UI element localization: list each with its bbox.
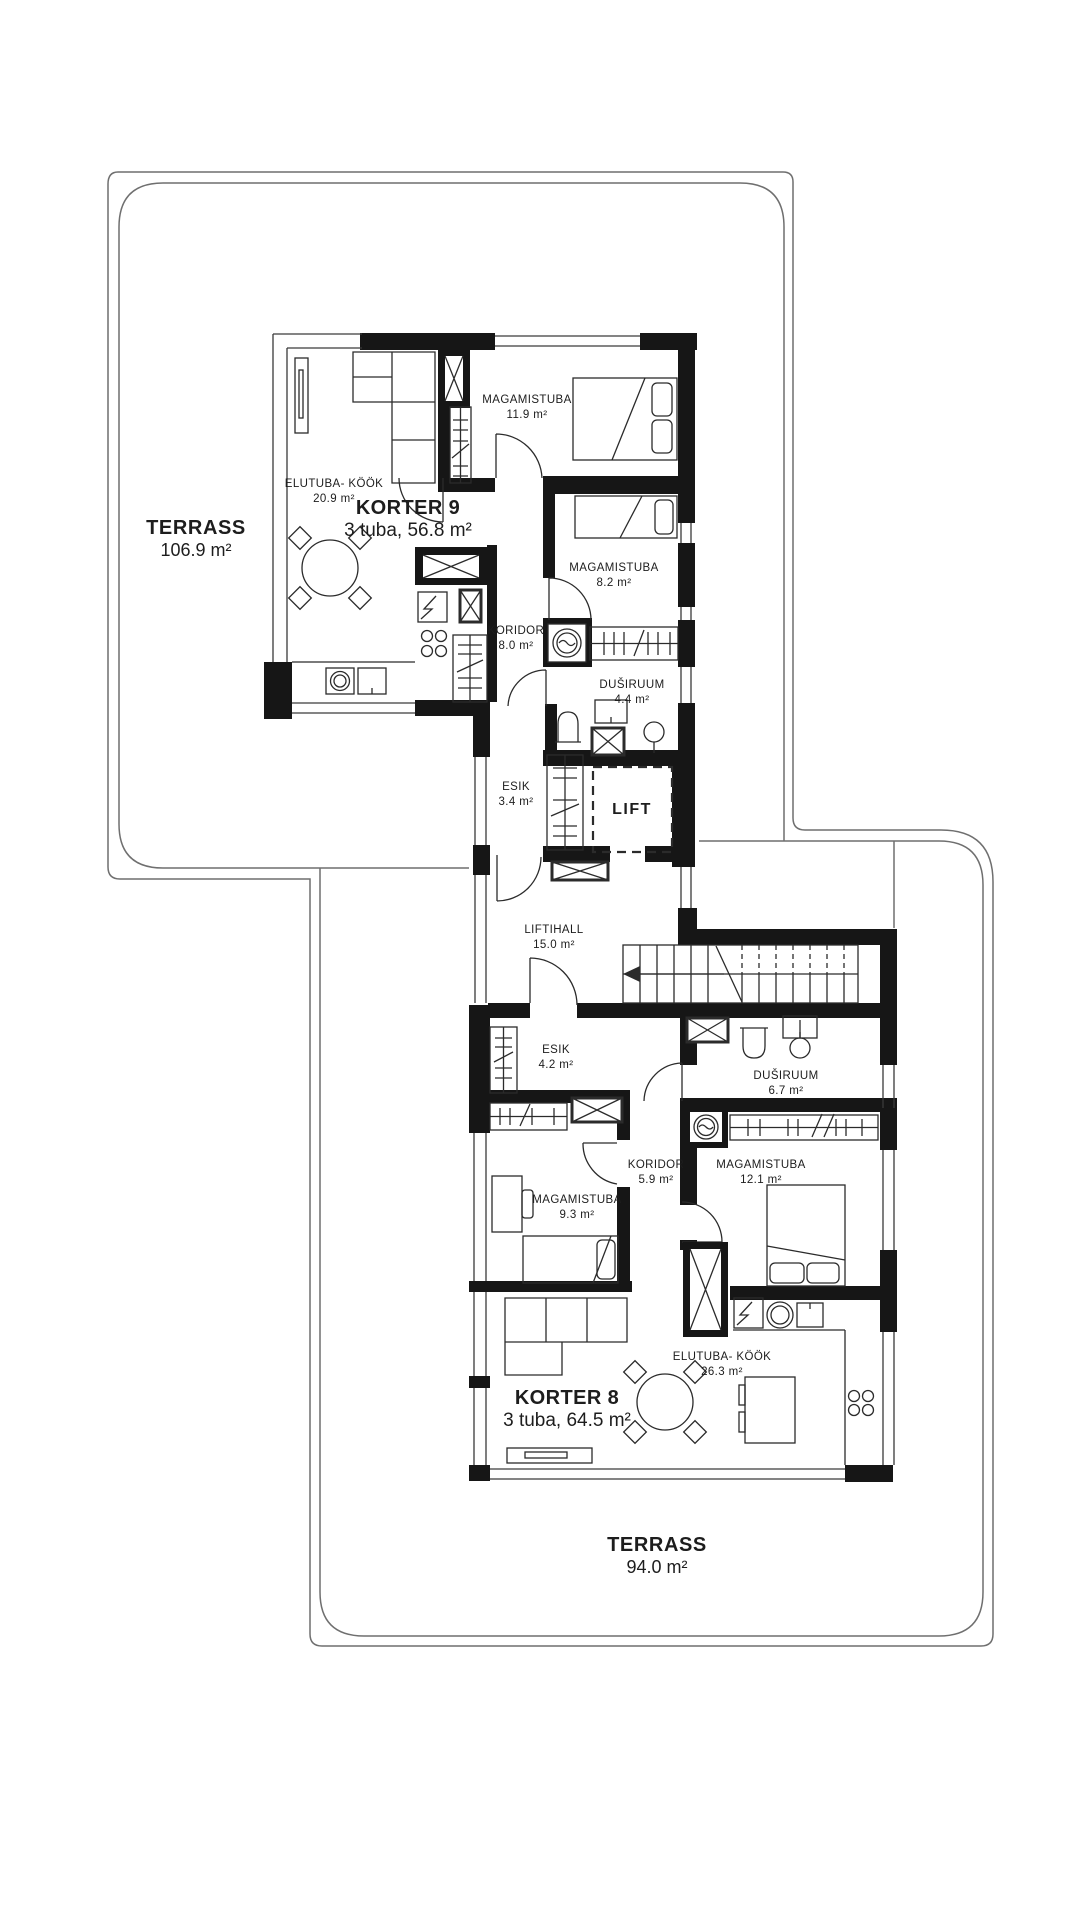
room-area: 20.9 m² [313,493,355,505]
room-name: KORIDOR [628,1159,684,1171]
apartment-info: 3 tuba, 64.5 m² [503,1410,631,1431]
room-area: 3.4 m² [499,796,534,808]
apartment-name: KORTER 8 [515,1387,619,1409]
wardrobe-icon [438,348,470,408]
terrace-label-top: TERRASS 106.9 m² [146,517,246,560]
terrace-name: TERRASS [607,1534,707,1556]
washing-machine-icon [548,624,586,662]
room-name: ELUTUBA- KÖÖK [673,1351,772,1363]
wardrobe-icon [415,547,487,585]
apartment-name: KORTER 9 [356,497,460,519]
room-name: DUŠIRUUM [599,678,664,691]
cabinet-icon [460,590,481,622]
room-area: 6.7 m² [769,1085,804,1097]
room-name: ESIK [542,1044,570,1056]
terrace-name: TERRASS [146,517,246,539]
room-name: MAGAMISTUBA [716,1159,805,1171]
room-area: 12.1 m² [740,1174,782,1186]
bath-cabinet-icon [592,728,624,755]
terrace-area: 106.9 m² [160,540,231,560]
floor-plan-page: TERRASS 106.9 m² TERRASS 94.0 m² KORTER … [0,0,1080,1920]
room-area: 4.2 m² [539,1059,574,1071]
room-name: MAGAMISTUBA [482,394,571,406]
room-area: 8.2 m² [597,577,632,589]
floor-plan-svg: TERRASS 106.9 m² TERRASS 94.0 m² KORTER … [0,0,1080,1920]
room-name: DUŠIRUUM [753,1069,818,1082]
apartment-info: 3 tuba, 56.8 m² [344,520,472,541]
wardrobe-icon [572,1098,622,1122]
washing-machine-icon [684,1106,728,1148]
room-area: 11.9 m² [507,409,548,421]
room-area: 8.0 m² [499,640,534,652]
room-area: 26.3 m² [701,1366,743,1378]
room-name: KORIDOR [488,625,544,637]
bath-cabinet-icon [687,1018,728,1042]
terrace-area: 94.0 m² [626,1557,687,1577]
room-area: 5.9 m² [639,1174,674,1186]
terrace-label-bottom: TERRASS 94.0 m² [607,1534,707,1577]
room-name: ELUTUBA- KÖÖK [285,478,384,490]
room-name: MAGAMISTUBA [569,562,658,574]
hall-wardrobe-icon [552,862,608,880]
room-name: ESIK [502,781,530,793]
room-area: 9.3 m² [560,1209,595,1221]
room-name: MAGAMISTUBA [532,1194,621,1206]
room-name: LIFTIHALL [524,924,583,936]
room-area: 4.4 m² [615,694,650,706]
lift-label: LIFT [612,801,652,818]
tall-cabinet-icon [683,1242,728,1337]
room-area: 15.0 m² [533,939,575,951]
